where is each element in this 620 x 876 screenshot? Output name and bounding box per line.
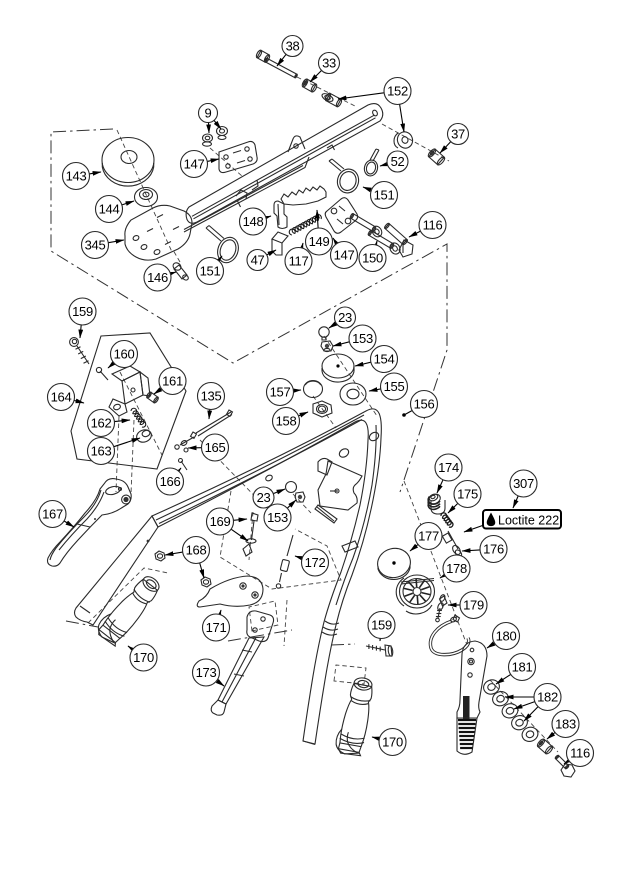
svg-text:169: 169 <box>210 514 231 529</box>
svg-text:153: 153 <box>267 510 288 525</box>
svg-text:172: 172 <box>305 555 326 570</box>
svg-text:162: 162 <box>91 416 112 431</box>
svg-text:159: 159 <box>371 618 392 633</box>
svg-text:149: 149 <box>309 234 330 249</box>
svg-text:47: 47 <box>251 253 265 268</box>
svg-text:144: 144 <box>99 202 120 217</box>
svg-text:33: 33 <box>322 56 336 71</box>
svg-text:167: 167 <box>42 507 63 522</box>
svg-text:166: 166 <box>160 474 181 489</box>
svg-text:163: 163 <box>91 444 112 459</box>
svg-text:143: 143 <box>66 169 87 184</box>
svg-text:151: 151 <box>374 188 395 203</box>
svg-text:52: 52 <box>391 154 405 169</box>
svg-text:23: 23 <box>257 490 271 505</box>
svg-text:307: 307 <box>513 476 534 491</box>
svg-text:164: 164 <box>51 390 72 405</box>
svg-text:181: 181 <box>512 660 533 675</box>
svg-text:170: 170 <box>382 735 403 750</box>
svg-text:116: 116 <box>570 746 590 761</box>
svg-text:173: 173 <box>196 665 217 680</box>
svg-text:116: 116 <box>423 218 443 233</box>
svg-text:152: 152 <box>387 84 408 99</box>
svg-text:151: 151 <box>200 264 221 279</box>
svg-text:161: 161 <box>162 374 183 389</box>
svg-text:157: 157 <box>270 385 291 400</box>
svg-text:175: 175 <box>457 487 478 502</box>
svg-text:180: 180 <box>496 629 517 644</box>
svg-text:154: 154 <box>374 352 395 367</box>
svg-text:37: 37 <box>451 127 465 142</box>
svg-text:9: 9 <box>205 106 212 121</box>
svg-text:179: 179 <box>463 598 484 613</box>
svg-text:155: 155 <box>384 379 405 394</box>
svg-text:146: 146 <box>147 270 168 285</box>
svg-text:23: 23 <box>338 310 352 325</box>
svg-text:178: 178 <box>446 561 467 576</box>
svg-text:182: 182 <box>537 690 558 705</box>
svg-text:183: 183 <box>555 717 576 732</box>
svg-text:153: 153 <box>352 331 373 346</box>
svg-text:177: 177 <box>418 529 439 544</box>
svg-text:148: 148 <box>243 214 264 229</box>
svg-text:117: 117 <box>289 254 309 269</box>
svg-text:159: 159 <box>72 304 93 319</box>
svg-text:168: 168 <box>186 543 207 558</box>
svg-text:174: 174 <box>438 460 459 475</box>
svg-text:176: 176 <box>483 542 504 557</box>
svg-text:38: 38 <box>286 39 300 54</box>
svg-text:165: 165 <box>205 440 226 455</box>
svg-text:345: 345 <box>85 238 106 253</box>
svg-text:147: 147 <box>184 157 205 172</box>
svg-text:156: 156 <box>414 397 435 412</box>
svg-text:150: 150 <box>362 251 383 266</box>
svg-text:160: 160 <box>114 347 135 362</box>
svg-text:170: 170 <box>133 650 154 665</box>
svg-text:135: 135 <box>201 389 222 404</box>
svg-text:158: 158 <box>276 414 297 429</box>
svg-text:147: 147 <box>334 248 355 263</box>
svg-text:171: 171 <box>206 620 227 635</box>
svg-text:Loctite 222: Loctite 222 <box>498 514 559 528</box>
